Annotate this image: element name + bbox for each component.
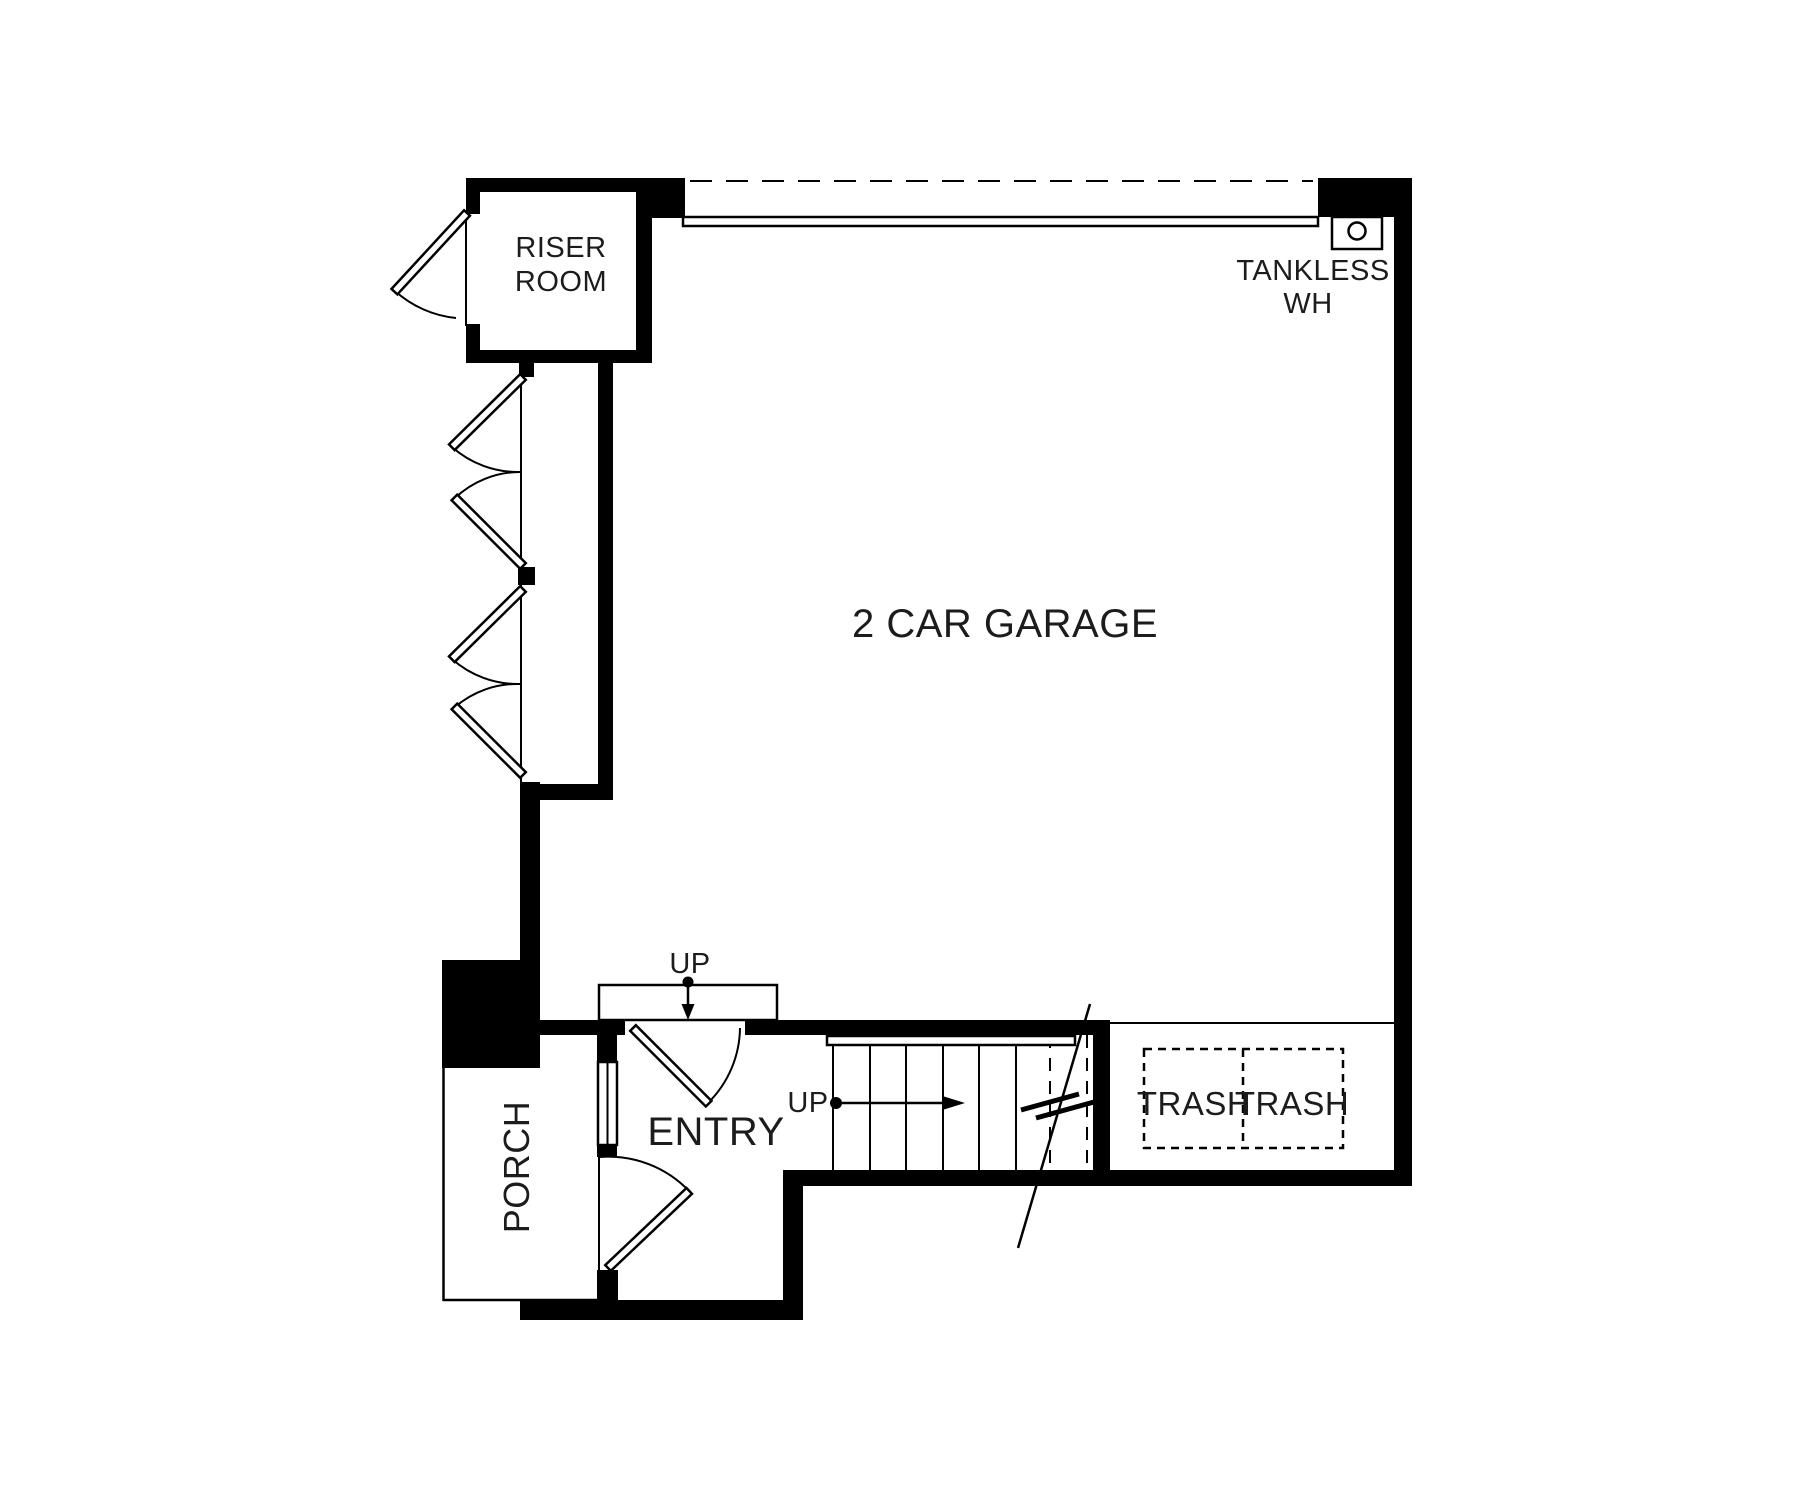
wall-entry-south	[520, 1300, 803, 1320]
riser-room: RISER ROOM	[391, 210, 607, 326]
wall-entry-east-jog	[783, 1170, 803, 1320]
front-door-swing-arc	[599, 1157, 690, 1192]
trash-label-right: TRASH	[1235, 1085, 1349, 1122]
entry-up-label: UP	[669, 948, 710, 980]
riser-door-leaf	[391, 210, 469, 294]
bifold-arc-1a	[452, 447, 520, 472]
tankless-label-line2: WH	[1283, 288, 1332, 320]
bifold-leaf-1b	[452, 495, 526, 569]
porch-label: PORCH	[496, 1101, 537, 1234]
jamb-window-top	[597, 1035, 617, 1062]
entry-landing: UP	[599, 948, 777, 1020]
tankless-label-line1: TANKLESS	[1236, 255, 1389, 287]
stair-up-label: UP	[787, 1087, 828, 1119]
jamb-front-door	[597, 1270, 618, 1303]
wall-riser-bottom	[466, 350, 652, 363]
staircase: UP	[787, 1004, 1094, 1248]
floor-plan-svg: TANKLESS WH RISER ROOM 2 CAR	[0, 0, 1800, 1500]
riser-room-label-line1: RISER	[515, 232, 606, 264]
garage-door	[683, 181, 1318, 226]
bifold-doors	[449, 374, 526, 784]
wall-top-right-block	[1318, 178, 1412, 217]
wall-east-exterior	[1394, 217, 1412, 1186]
garage-door-header	[683, 217, 1318, 226]
trash-area: TRASH TRASH	[1110, 1023, 1394, 1148]
wall-garage-interior-vertical	[598, 363, 613, 800]
wall-stair-east	[1093, 1022, 1110, 1186]
wall-bottom-south	[783, 1170, 1412, 1186]
tankless-water-heater: TANKLESS WH	[1236, 217, 1389, 320]
wall-riser-left-lower	[466, 324, 480, 363]
bifold-arc-1b	[455, 472, 520, 498]
riser-room-label-line2: ROOM	[515, 266, 607, 298]
wall-jog-horizontal	[532, 784, 613, 800]
wall-porch-corner-block	[442, 960, 540, 1068]
entry-door-leaf	[630, 1025, 711, 1106]
garage-label: 2 CAR GARAGE	[852, 602, 1158, 646]
wall-entry-north-left	[442, 1020, 625, 1035]
floor-plan: TANKLESS WH RISER ROOM 2 CAR	[0, 0, 1800, 1500]
walls	[442, 178, 1412, 1320]
wall-riser-right	[636, 192, 652, 363]
wall-riser-left-upper	[466, 178, 480, 214]
riser-door-swing-arc	[395, 291, 456, 318]
bifold-leaf-2b	[452, 704, 526, 778]
entry-interior-door	[630, 1025, 740, 1106]
stair-up-arrowhead-icon	[944, 1097, 965, 1110]
bifold-arc-2a	[452, 659, 520, 684]
stair-handrail	[827, 1036, 1075, 1045]
entry-up-arrowhead-icon	[682, 1004, 695, 1020]
entry-door-swing-arc	[708, 1028, 740, 1103]
front-entry-wall	[598, 1062, 692, 1271]
wall-entry-north-right	[745, 1020, 1110, 1035]
bifold-arc-2b	[455, 684, 520, 707]
bifold-leaf-1a	[449, 374, 526, 450]
jamb-window-bottom	[597, 1145, 617, 1157]
porch: PORCH	[443, 1068, 598, 1301]
entry-label: ENTRY	[647, 1110, 784, 1154]
bifold-leaf-2a	[449, 586, 526, 662]
front-door-leaf	[605, 1188, 692, 1271]
